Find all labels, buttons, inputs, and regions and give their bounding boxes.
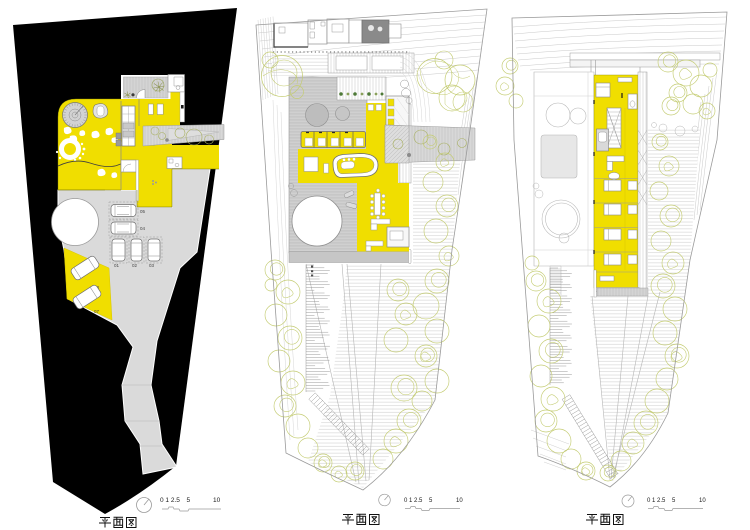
- svg-text:01: 01: [114, 263, 120, 268]
- svg-text:03: 03: [149, 263, 155, 268]
- svg-text:05: 05: [140, 209, 146, 214]
- svg-text:5: 5: [187, 497, 191, 504]
- svg-text:10: 10: [213, 497, 221, 504]
- svg-text:10: 10: [456, 498, 463, 504]
- svg-text:07: 07: [94, 309, 100, 314]
- svg-text:10: 10: [699, 498, 706, 504]
- svg-text:02: 02: [132, 263, 138, 268]
- svg-text:0 1 2.5: 0 1 2.5: [647, 498, 666, 504]
- svg-text:0 1 2.5: 0 1 2.5: [160, 497, 180, 504]
- svg-text:04: 04: [140, 226, 146, 231]
- svg-text:0 1 2.5: 0 1 2.5: [404, 498, 423, 504]
